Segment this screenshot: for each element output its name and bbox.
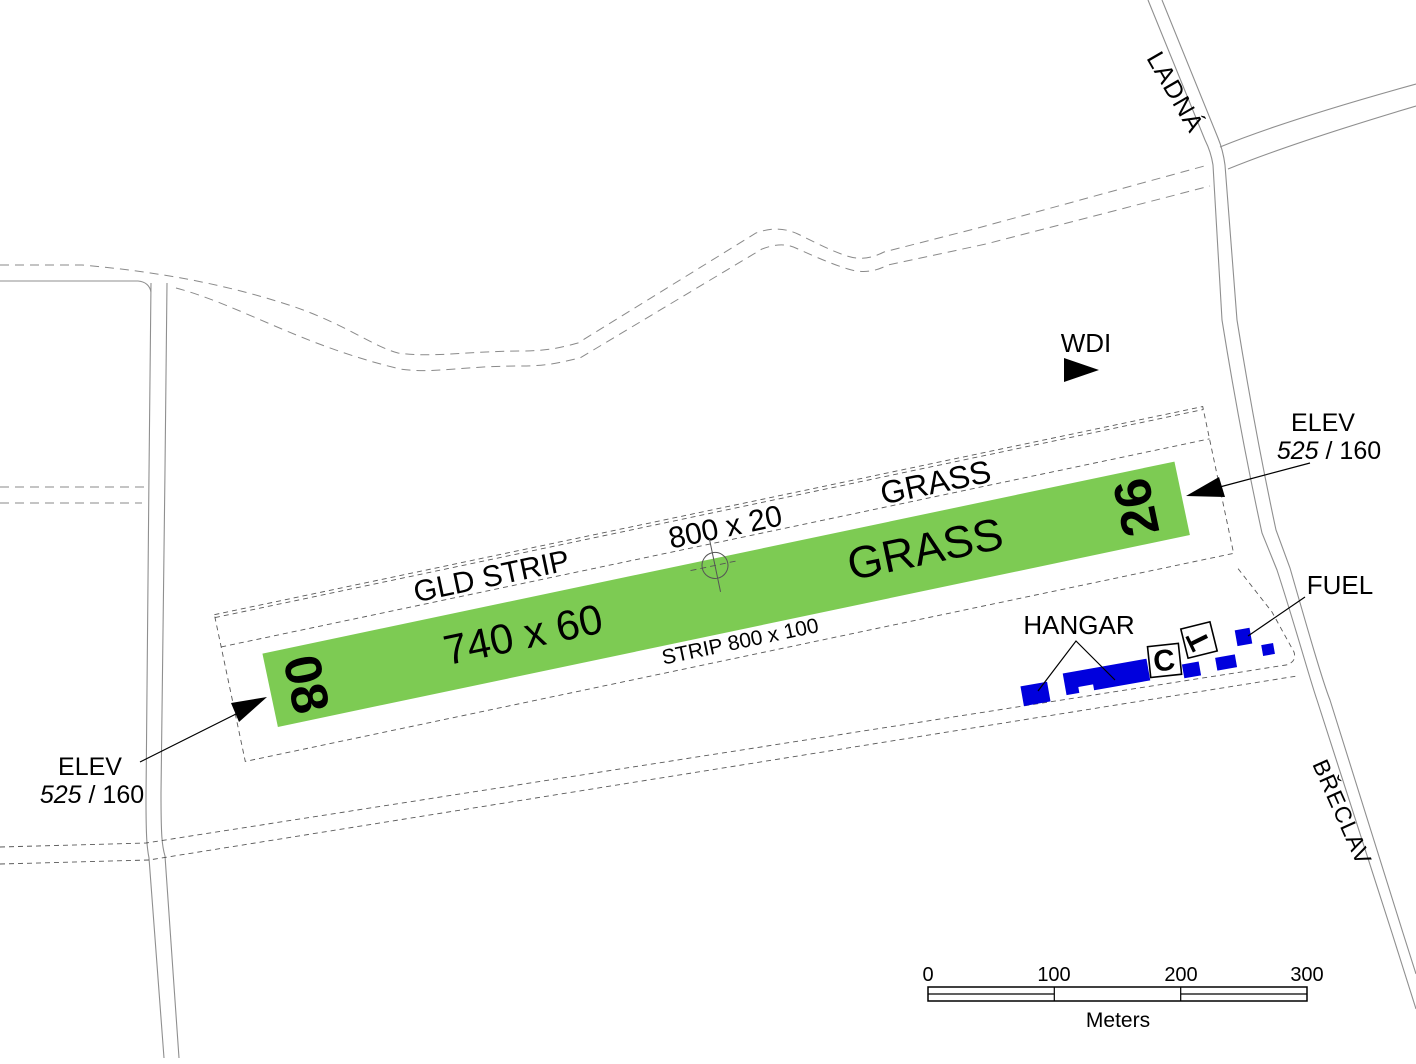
elev-west-arrow-line (140, 711, 242, 762)
elev-east-arrowhead-icon (1186, 477, 1225, 497)
road-left-vertical-w (146, 283, 164, 1058)
elev-west-value-italic: 525 (40, 781, 82, 809)
scalebar-tick-100: 100 (1037, 964, 1070, 986)
grass-runway (262, 462, 1189, 727)
elev-west-value-rest: / 160 (82, 781, 145, 809)
fuel-building (1235, 628, 1253, 646)
road-west-wavy-lower (176, 186, 1210, 371)
road-name-breclav: BŘECLAV (1307, 755, 1377, 869)
scalebar-tick-300: 300 (1290, 964, 1323, 986)
gld-strip-dimensions-label: 800 x 20 (666, 499, 785, 555)
runway-designator-08: 08 (271, 650, 340, 719)
hangar-building-long (1063, 659, 1151, 695)
road-left-vertical-e (161, 283, 179, 1058)
elev-east-value-rest: / 160 (1319, 437, 1382, 465)
small-building-1 (1182, 662, 1201, 679)
road-east-branch-upper (1220, 84, 1416, 147)
wdi-label: WDI (1061, 328, 1112, 358)
small-building-2 (1215, 654, 1237, 670)
road-east-branch-lower (1228, 106, 1416, 169)
scalebar-tick-200: 200 (1164, 964, 1197, 986)
road-west-wavy-upper (0, 165, 1208, 355)
runway-strip-group: GLD STRIP 800 x 20 GRASS 740 x 60 GRASS … (214, 407, 1233, 762)
fuel-label: FUEL (1307, 570, 1373, 600)
elev-east-value: 525 / 160 (1277, 437, 1381, 465)
gld-strip-surface-label: GRASS (877, 453, 994, 511)
hangar-label: HANGAR (1023, 610, 1134, 640)
wdi-icon (1064, 358, 1099, 382)
boundary-track-lower (0, 676, 1297, 864)
elev-west-label: ELEV (58, 753, 122, 781)
airfield-chart: GLD STRIP 800 x 20 GRASS 740 x 60 GRASS … (0, 0, 1416, 1064)
runway-designator-26: 26 (1103, 473, 1172, 542)
c-box: C (1147, 643, 1181, 679)
scalebar-unit-label: Meters (1086, 1009, 1150, 1032)
c-box-letter: C (1152, 643, 1177, 678)
elev-west-value: 525 / 160 (40, 781, 144, 809)
scalebar: 0 100 200 300 Meters (922, 964, 1323, 1032)
labels: WDI HANGAR FUEL ELEV 525 / 160 ELEV 525 … (40, 47, 1381, 869)
t-box: T (1178, 621, 1219, 659)
small-building-3 (1261, 643, 1275, 656)
elev-east-value-italic: 525 (1277, 437, 1319, 465)
road-top-horizontal-lower (0, 281, 151, 292)
scalebar-tick-0: 0 (922, 964, 933, 986)
elev-east-label: ELEV (1291, 409, 1355, 437)
fuel-leader-line (1248, 597, 1305, 636)
